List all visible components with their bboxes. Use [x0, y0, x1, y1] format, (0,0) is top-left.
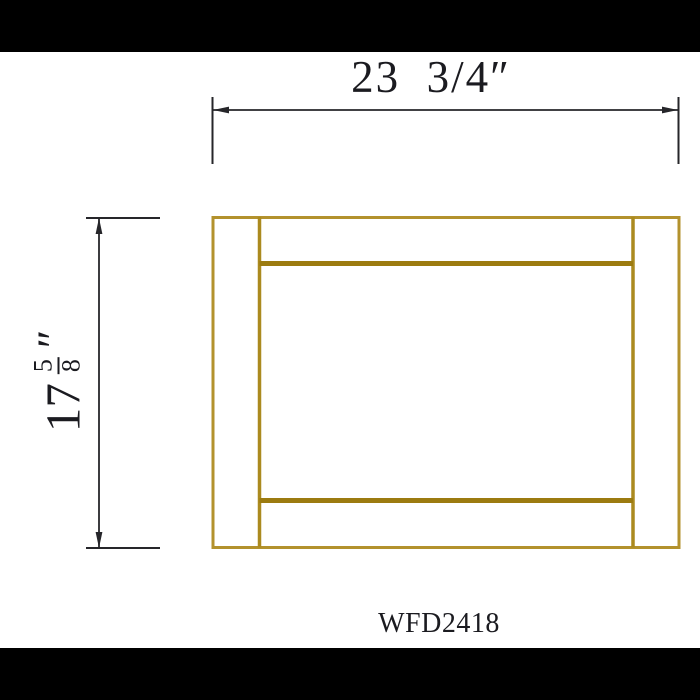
height-dimension-inch-mark: ″ — [28, 330, 79, 348]
width-dim-right-arrowhead-icon — [662, 107, 678, 114]
height-dimension-label: 17 5 8 ″ — [35, 330, 92, 432]
height-dimension-fraction-numerator: 5 — [32, 357, 60, 374]
width-dim-left-arrowhead-icon — [213, 107, 229, 114]
width-dimension-label: 23 3/4″ — [351, 51, 511, 103]
model-code-label: WFD2418 — [378, 608, 500, 640]
height-dim-bottom-arrowhead-icon — [96, 532, 103, 548]
height-dim-top-arrowhead-icon — [96, 218, 103, 234]
height-dimension-fraction: 5 8 — [32, 357, 84, 374]
height-dimension-fraction-denominator: 8 — [60, 359, 85, 372]
height-dimension-whole-number: 17 — [35, 383, 92, 432]
door-frame-diagram — [0, 0, 700, 700]
cabinet-door-drawing-page: 23 3/4″ 17 5 8 ″ WFD2418 — [0, 0, 700, 700]
